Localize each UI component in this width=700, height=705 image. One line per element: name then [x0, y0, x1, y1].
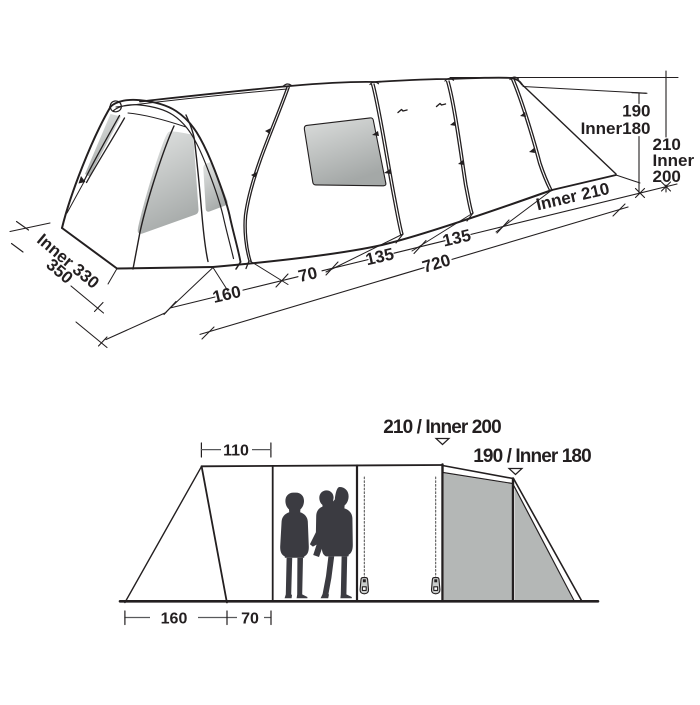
- svg-text:Inner180: Inner180: [581, 119, 651, 138]
- svg-text:70: 70: [241, 611, 259, 628]
- svg-text:720: 720: [420, 250, 453, 276]
- svg-text:160: 160: [211, 282, 243, 307]
- svg-text:160: 160: [161, 611, 188, 628]
- svg-text:110: 110: [223, 443, 249, 460]
- svg-text:135: 135: [441, 226, 473, 251]
- svg-text:200: 200: [653, 167, 681, 186]
- svg-text:70: 70: [296, 263, 319, 286]
- svg-text:190 / Inner 180: 190 / Inner 180: [473, 446, 591, 467]
- svg-text:190: 190: [622, 102, 650, 121]
- svg-text:210 / Inner 200: 210 / Inner 200: [383, 417, 501, 438]
